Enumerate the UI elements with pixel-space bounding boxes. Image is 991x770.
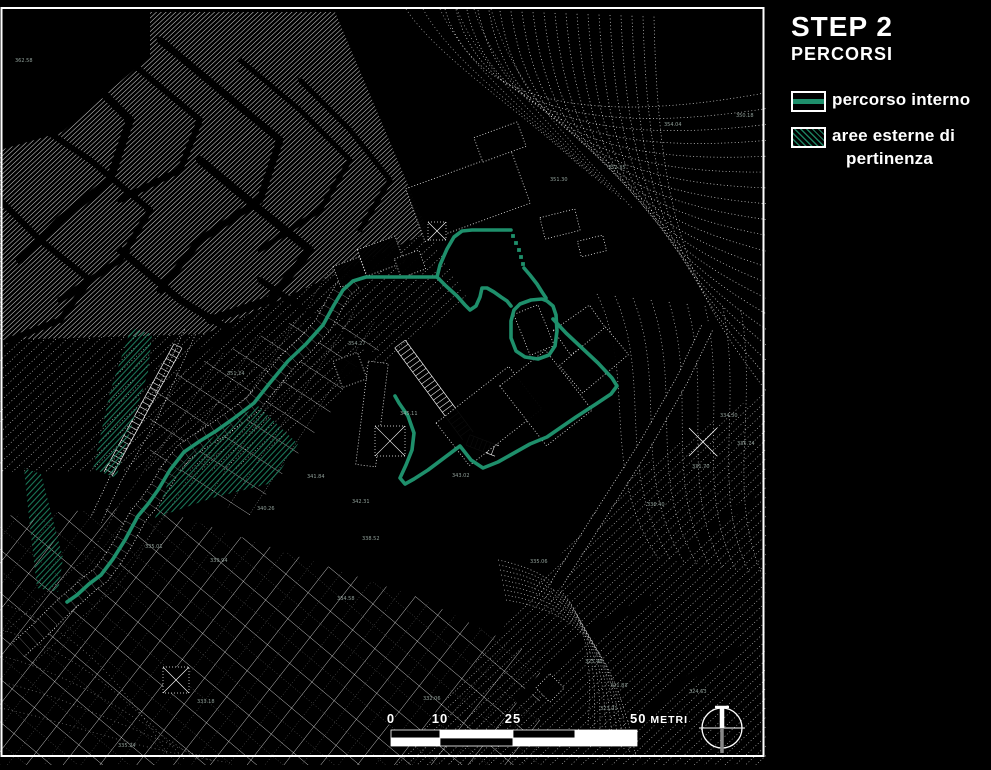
svg-text:334.58: 334.58	[337, 596, 355, 602]
svg-text:336.40: 336.40	[647, 502, 665, 508]
scale-bar: 0102550 METRI	[387, 711, 688, 746]
svg-text:352.35: 352.35	[608, 165, 626, 171]
svg-text:354.04: 354.04	[664, 122, 682, 128]
page: { "panel": { "title": "STEP 2", "subtitl…	[0, 0, 991, 765]
svg-text:334.30: 334.30	[720, 413, 738, 419]
svg-text:335.01: 335.01	[145, 544, 163, 550]
x-structure	[163, 667, 189, 693]
svg-text:338.52: 338.52	[362, 536, 380, 542]
svg-text:342.31: 342.31	[352, 499, 370, 505]
svg-text:335.74: 335.74	[737, 441, 755, 447]
svg-text:332.06: 332.06	[423, 696, 441, 702]
legend-item-aree-esterne: aree esterne di pertinenza	[791, 125, 991, 171]
svg-text:354.27: 354.27	[348, 341, 366, 347]
svg-text:343.02: 343.02	[452, 473, 470, 479]
svg-text:339.94: 339.94	[210, 558, 228, 564]
hatch-aree-esterne-di-pertinenza	[0, 306, 315, 615]
legend-label: aree esterne di pertinenza	[832, 125, 991, 171]
x-structure	[375, 426, 405, 456]
legend-panel: STEP 2 PERCORSI percorso interno aree es…	[791, 12, 991, 184]
north-arrow-icon	[699, 706, 745, 753]
svg-text:350.18: 350.18	[736, 113, 754, 119]
survey-x-mark	[689, 428, 717, 456]
aree-esterne-swatch-icon	[791, 127, 826, 148]
svg-text:323.21: 323.21	[600, 706, 618, 712]
page-subtitle: PERCORSI	[791, 44, 991, 65]
svg-text:325.40: 325.40	[585, 659, 603, 665]
site-plan-map: 362.58351.30352.35354.04350.18354.27345.…	[0, 0, 766, 765]
spot-elevation-labels: 362.58351.30352.35354.04350.18354.27345.…	[15, 58, 755, 749]
svg-text:335.06: 335.06	[530, 559, 548, 565]
site-plan-drawing: 362.58351.30352.35354.04350.18354.27345.…	[0, 0, 766, 765]
svg-text:50 METRI: 50 METRI	[630, 711, 688, 726]
svg-text:335.24: 335.24	[118, 743, 136, 749]
svg-text:331.70: 331.70	[692, 464, 710, 470]
page-title: STEP 2	[791, 12, 991, 41]
svg-text:321.83: 321.83	[610, 683, 628, 689]
legend: percorso interno aree esterne di pertine…	[791, 89, 991, 171]
percorso-interno-swatch-icon	[791, 91, 826, 112]
svg-text:345.11: 345.11	[400, 411, 418, 417]
legend-label: percorso interno	[832, 89, 970, 112]
svg-text:324.63: 324.63	[689, 689, 707, 695]
svg-text:10: 10	[432, 711, 448, 726]
svg-text:333.18: 333.18	[197, 699, 215, 705]
legend-item-percorso-interno: percorso interno	[791, 89, 991, 112]
svg-text:362.58: 362.58	[15, 58, 33, 64]
svg-text:25: 25	[505, 711, 521, 726]
svg-text:0: 0	[387, 711, 395, 726]
x-structure	[428, 222, 446, 240]
svg-text:340.26: 340.26	[257, 506, 275, 512]
svg-text:351.30: 351.30	[550, 177, 568, 183]
svg-text:341.84: 341.84	[307, 474, 325, 480]
svg-text:351.24: 351.24	[227, 371, 245, 377]
